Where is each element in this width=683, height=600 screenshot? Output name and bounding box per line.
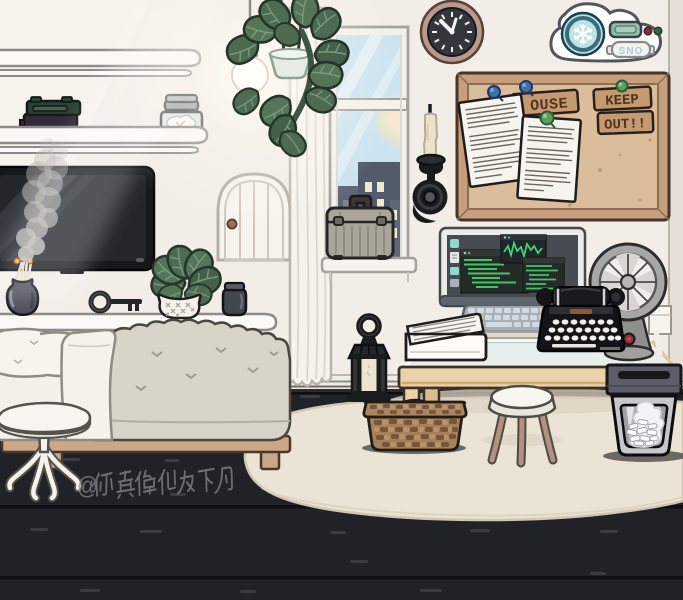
svg-text:@: @	[76, 471, 98, 500]
svg-text:KEEP: KEEP	[605, 92, 639, 110]
svg-text:SNO: SNO	[619, 46, 644, 57]
svg-text:OUT!!: OUT!!	[604, 116, 647, 133]
